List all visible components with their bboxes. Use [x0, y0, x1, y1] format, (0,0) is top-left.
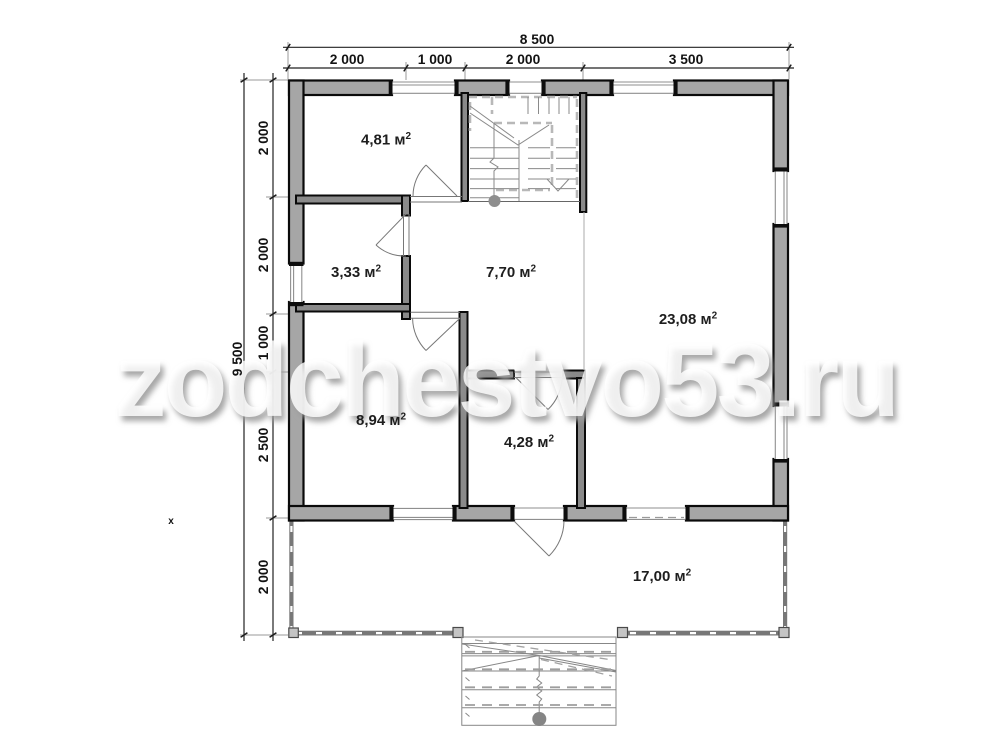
svg-text:2 000: 2 000: [256, 559, 271, 594]
svg-text:8 500: 8 500: [520, 32, 555, 47]
svg-text:1 000: 1 000: [256, 325, 271, 360]
svg-text:2 000: 2 000: [256, 237, 271, 272]
svg-text:17,00 м2: 17,00 м2: [633, 568, 692, 586]
svg-text:9 500: 9 500: [230, 341, 245, 376]
svg-text:2 000: 2 000: [330, 52, 365, 67]
svg-text:2 500: 2 500: [256, 427, 271, 462]
svg-text:3 500: 3 500: [669, 52, 704, 67]
svg-text:2 000: 2 000: [506, 52, 541, 67]
svg-text:4,28 м2: 4,28 м2: [504, 434, 554, 452]
svg-text:zodchestvo53.ru: zodchestvo53.ru: [114, 323, 897, 439]
svg-text:2 000: 2 000: [256, 120, 271, 155]
svg-text:1 000: 1 000: [418, 52, 453, 67]
svg-text:3,33 м2: 3,33 м2: [331, 264, 381, 282]
svg-text:8,94 м2: 8,94 м2: [356, 412, 406, 430]
svg-text:7,70 м2: 7,70 м2: [486, 264, 536, 282]
svg-text:4,81 м2: 4,81 м2: [361, 131, 411, 149]
svg-text:23,08 м2: 23,08 м2: [659, 311, 718, 329]
svg-text:x: x: [168, 516, 174, 527]
